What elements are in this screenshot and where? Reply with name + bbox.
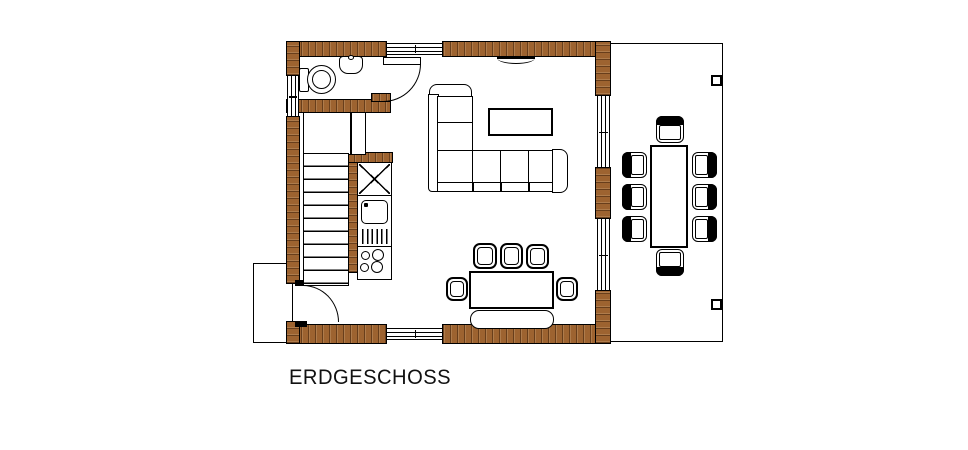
wall-left-middle bbox=[287, 117, 299, 283]
dining-chair bbox=[526, 244, 549, 269]
sofa-back-cushion bbox=[437, 96, 473, 124]
terrace-chair bbox=[656, 116, 684, 143]
sofa-front-rail-divider bbox=[500, 183, 502, 191]
stair-landing bbox=[303, 112, 366, 155]
dining-bench bbox=[470, 310, 554, 329]
kitchen-sink-drain bbox=[364, 203, 368, 207]
sofa-seat-cushion bbox=[500, 150, 530, 184]
window-right-lower bbox=[597, 218, 610, 291]
window-top bbox=[386, 43, 443, 55]
terrace-table bbox=[650, 145, 688, 248]
terrace-chair bbox=[622, 152, 647, 178]
sofa-front-rail-divider bbox=[528, 183, 530, 191]
stair-steps bbox=[303, 153, 349, 286]
window-bathroom bbox=[287, 75, 299, 117]
wall-bathroom bbox=[287, 100, 390, 112]
bathroom-door-swing-arc bbox=[383, 64, 421, 102]
sofa-back-cushion bbox=[437, 122, 473, 152]
sofa-corner-seat bbox=[437, 150, 474, 184]
terrace-chair bbox=[622, 184, 647, 210]
terrace-post bbox=[711, 299, 722, 310]
floor-label: ERDGESCHOSS bbox=[289, 366, 451, 390]
wall-top-right bbox=[443, 42, 610, 56]
sofa-armrest-right bbox=[552, 149, 568, 193]
wall-left-upper bbox=[287, 42, 299, 75]
terrace-chair bbox=[692, 184, 717, 210]
coffee-table bbox=[488, 108, 553, 136]
window-right-upper bbox=[597, 95, 610, 168]
wall-bottom-left bbox=[287, 325, 386, 343]
dining-table bbox=[469, 271, 554, 309]
wall-niche-arc bbox=[497, 58, 535, 64]
washbasin-tap bbox=[348, 55, 354, 60]
sofa-seat-cushion bbox=[472, 150, 502, 184]
dining-chair bbox=[556, 277, 578, 301]
sofa-seat-cushion bbox=[528, 150, 555, 184]
stove-burner bbox=[361, 251, 370, 260]
dining-chair bbox=[446, 277, 468, 301]
terrace-post bbox=[711, 75, 722, 86]
stove-burner bbox=[371, 261, 383, 273]
sofa-front-rail bbox=[437, 182, 554, 192]
wall-top-left bbox=[287, 42, 386, 56]
dining-chair bbox=[500, 243, 523, 269]
kitchen-drainer bbox=[362, 229, 388, 244]
stair-landing-divider bbox=[350, 113, 352, 154]
entry-door-swing-arc bbox=[303, 285, 339, 322]
stove-burner bbox=[372, 249, 384, 261]
wall-right-lower bbox=[596, 291, 610, 343]
wall-right-middle bbox=[596, 168, 610, 218]
terrace-chair bbox=[692, 152, 717, 178]
floor-plan: ERDGESCHOSS bbox=[0, 0, 968, 450]
terrace-chair bbox=[622, 216, 647, 242]
window-bottom bbox=[386, 328, 443, 340]
kitchen-shaft-icon bbox=[357, 162, 392, 196]
sofa-front-rail-divider bbox=[472, 183, 474, 191]
dining-chair bbox=[473, 243, 497, 269]
terrace-chair bbox=[656, 249, 684, 276]
stove-burner bbox=[360, 263, 369, 272]
terrace-chair bbox=[692, 216, 717, 242]
wall-right-upper bbox=[596, 42, 610, 95]
toilet-bowl-inner bbox=[312, 70, 331, 89]
entry-door-jamb bbox=[295, 321, 307, 327]
